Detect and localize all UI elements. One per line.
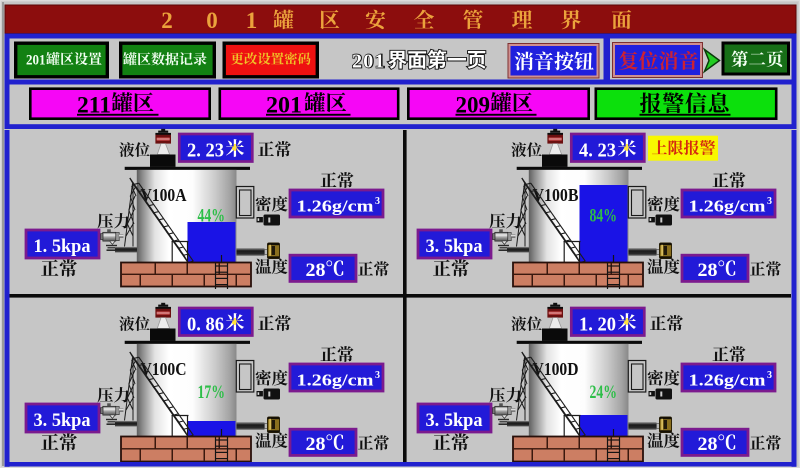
svg-text:3: 3 <box>767 370 772 381</box>
svg-text:1. 5kpa: 1. 5kpa <box>34 236 92 257</box>
svg-text:84%: 84% <box>590 205 618 226</box>
svg-text:1.26g/cm: 1.26g/cm <box>297 371 374 390</box>
svg-text:44%: 44% <box>198 205 226 226</box>
svg-text:3. 5kpa: 3. 5kpa <box>426 236 484 257</box>
svg-text:201: 201 <box>26 52 46 68</box>
svg-text:201: 201 <box>266 92 302 117</box>
svg-text:2. 23: 2. 23 <box>187 140 224 162</box>
svg-text:1: 1 <box>246 8 258 33</box>
svg-text:1.26g/cm: 1.26g/cm <box>689 197 766 216</box>
svg-text:1.26g/cm: 1.26g/cm <box>297 197 374 216</box>
svg-text:4. 23: 4. 23 <box>579 140 616 162</box>
svg-text:28: 28 <box>306 435 326 455</box>
svg-text:3: 3 <box>375 370 380 381</box>
svg-text:0. 86: 0. 86 <box>187 314 224 336</box>
svg-text:1.26g/cm: 1.26g/cm <box>689 371 766 390</box>
svg-text:24%: 24% <box>590 382 618 403</box>
svg-text:1. 20: 1. 20 <box>579 314 616 336</box>
svg-text:0: 0 <box>206 8 218 33</box>
svg-text:28: 28 <box>698 261 718 281</box>
svg-text:28: 28 <box>698 435 718 455</box>
svg-text:3. 5kpa: 3. 5kpa <box>34 410 92 431</box>
svg-text:3: 3 <box>767 196 772 207</box>
svg-text:28: 28 <box>306 261 326 281</box>
svg-text:201: 201 <box>352 51 386 73</box>
svg-text:2: 2 <box>161 8 173 33</box>
svg-text:17%: 17% <box>198 382 226 403</box>
svg-text:209: 209 <box>456 92 491 117</box>
svg-text:3. 5kpa: 3. 5kpa <box>426 410 484 431</box>
svg-text:3: 3 <box>375 196 380 207</box>
svg-text:211: 211 <box>77 92 111 117</box>
